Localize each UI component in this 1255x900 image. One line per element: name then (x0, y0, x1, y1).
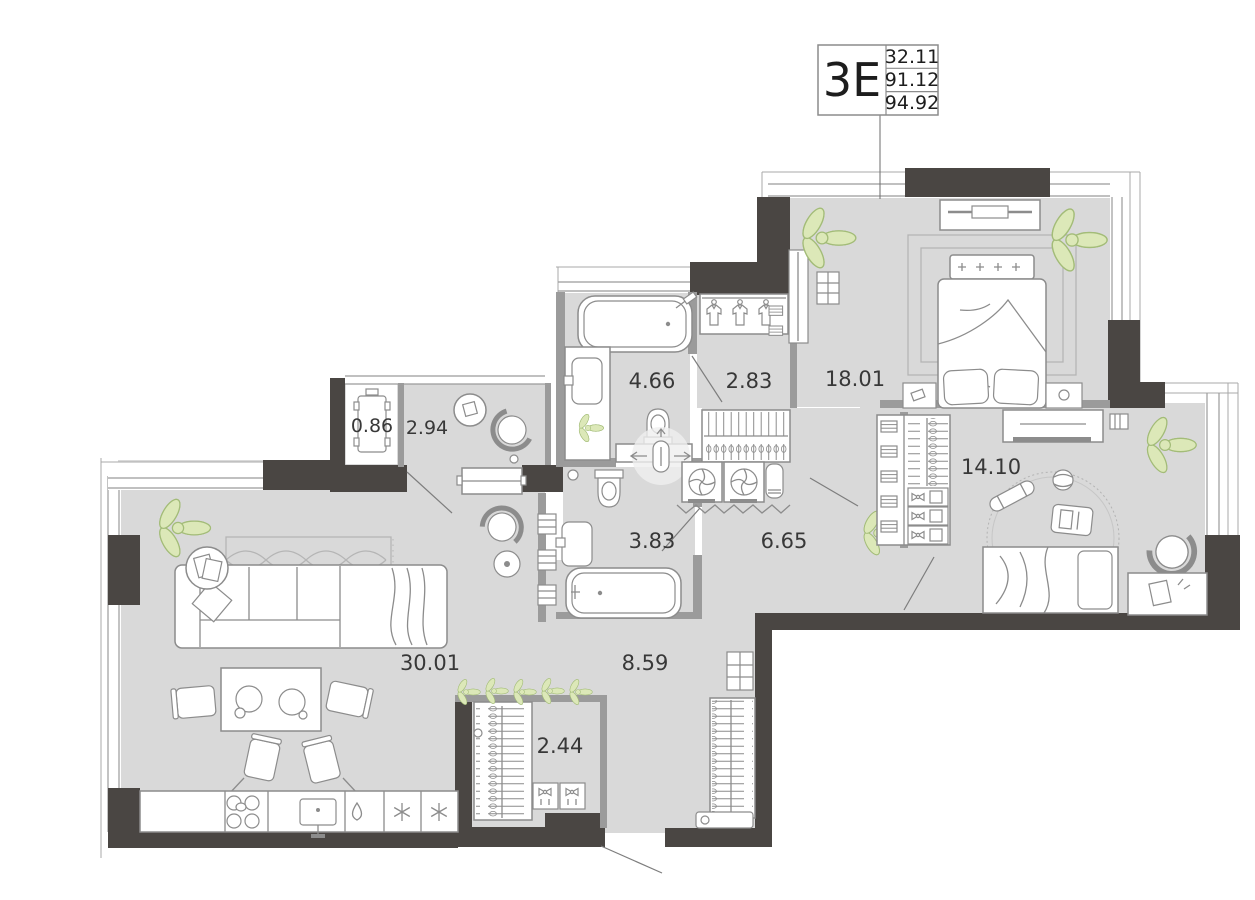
washbasin (556, 522, 592, 566)
label-lounge: 2.94 (406, 417, 448, 439)
side-table (186, 547, 228, 589)
kids-wardrobe (877, 415, 950, 545)
nightstand (903, 383, 936, 408)
pillow (1078, 551, 1112, 609)
label-bathroom1: 4.66 (629, 369, 676, 393)
bed-single (983, 547, 1118, 613)
pillow (943, 369, 989, 405)
ball-icon (1053, 470, 1073, 490)
dining-chair (171, 685, 216, 719)
label-kids-room: 14.10 (961, 455, 1021, 479)
nightstand (1046, 383, 1082, 408)
floor-plan-page: 30.01 8.59 2.44 3.83 6.65 4.66 2.83 18.0… (0, 0, 1255, 900)
area-value-1: 32.11 (885, 46, 939, 68)
shelf-icon (769, 326, 783, 335)
sideboard (457, 468, 526, 494)
label-balcony: 0.86 (351, 415, 393, 437)
bathtub (578, 292, 697, 352)
floor-plan: 30.01 8.59 2.44 3.83 6.65 4.66 2.83 18.0… (0, 0, 1255, 900)
wall-shelves (538, 514, 556, 605)
toilet-icon (595, 470, 623, 507)
washing-machine-icon (682, 462, 722, 503)
label-closet: 2.44 (537, 734, 584, 758)
kitchen-counter (140, 791, 458, 838)
shoe-drawers (908, 488, 948, 544)
books-icon (1110, 414, 1128, 429)
shelf-icon (769, 306, 783, 315)
label-wardrobe: 2.83 (726, 369, 773, 393)
bathtub (566, 568, 681, 618)
toy-car-icon (1051, 504, 1094, 536)
electrical-panel-icon (727, 652, 753, 690)
electrical-panel-icon (817, 272, 839, 304)
laundry-closet-rail (702, 410, 790, 462)
label-hallway: 8.59 (622, 651, 669, 675)
water-heater-icon (766, 464, 783, 498)
label-bathroom2: 3.83 (629, 529, 676, 553)
drain-icon (568, 470, 578, 480)
bed-double (938, 255, 1046, 408)
vanity-washbasin (564, 347, 610, 460)
label-bedroom: 18.01 (825, 367, 885, 391)
label-laundry: 6.65 (761, 529, 808, 553)
label-living: 30.01 (400, 651, 460, 675)
area-value-3: 94.92 (885, 92, 939, 114)
tv-console (940, 200, 1040, 230)
book-icon (1149, 580, 1171, 605)
pillow (993, 369, 1039, 405)
apartment-type-label: 3Е (823, 53, 881, 107)
dresser (1003, 410, 1103, 442)
washing-machine-icon (724, 462, 764, 503)
bedroom-closet (789, 250, 808, 343)
area-value-2: 91.12 (885, 69, 939, 91)
entry-door-swing (601, 846, 662, 873)
